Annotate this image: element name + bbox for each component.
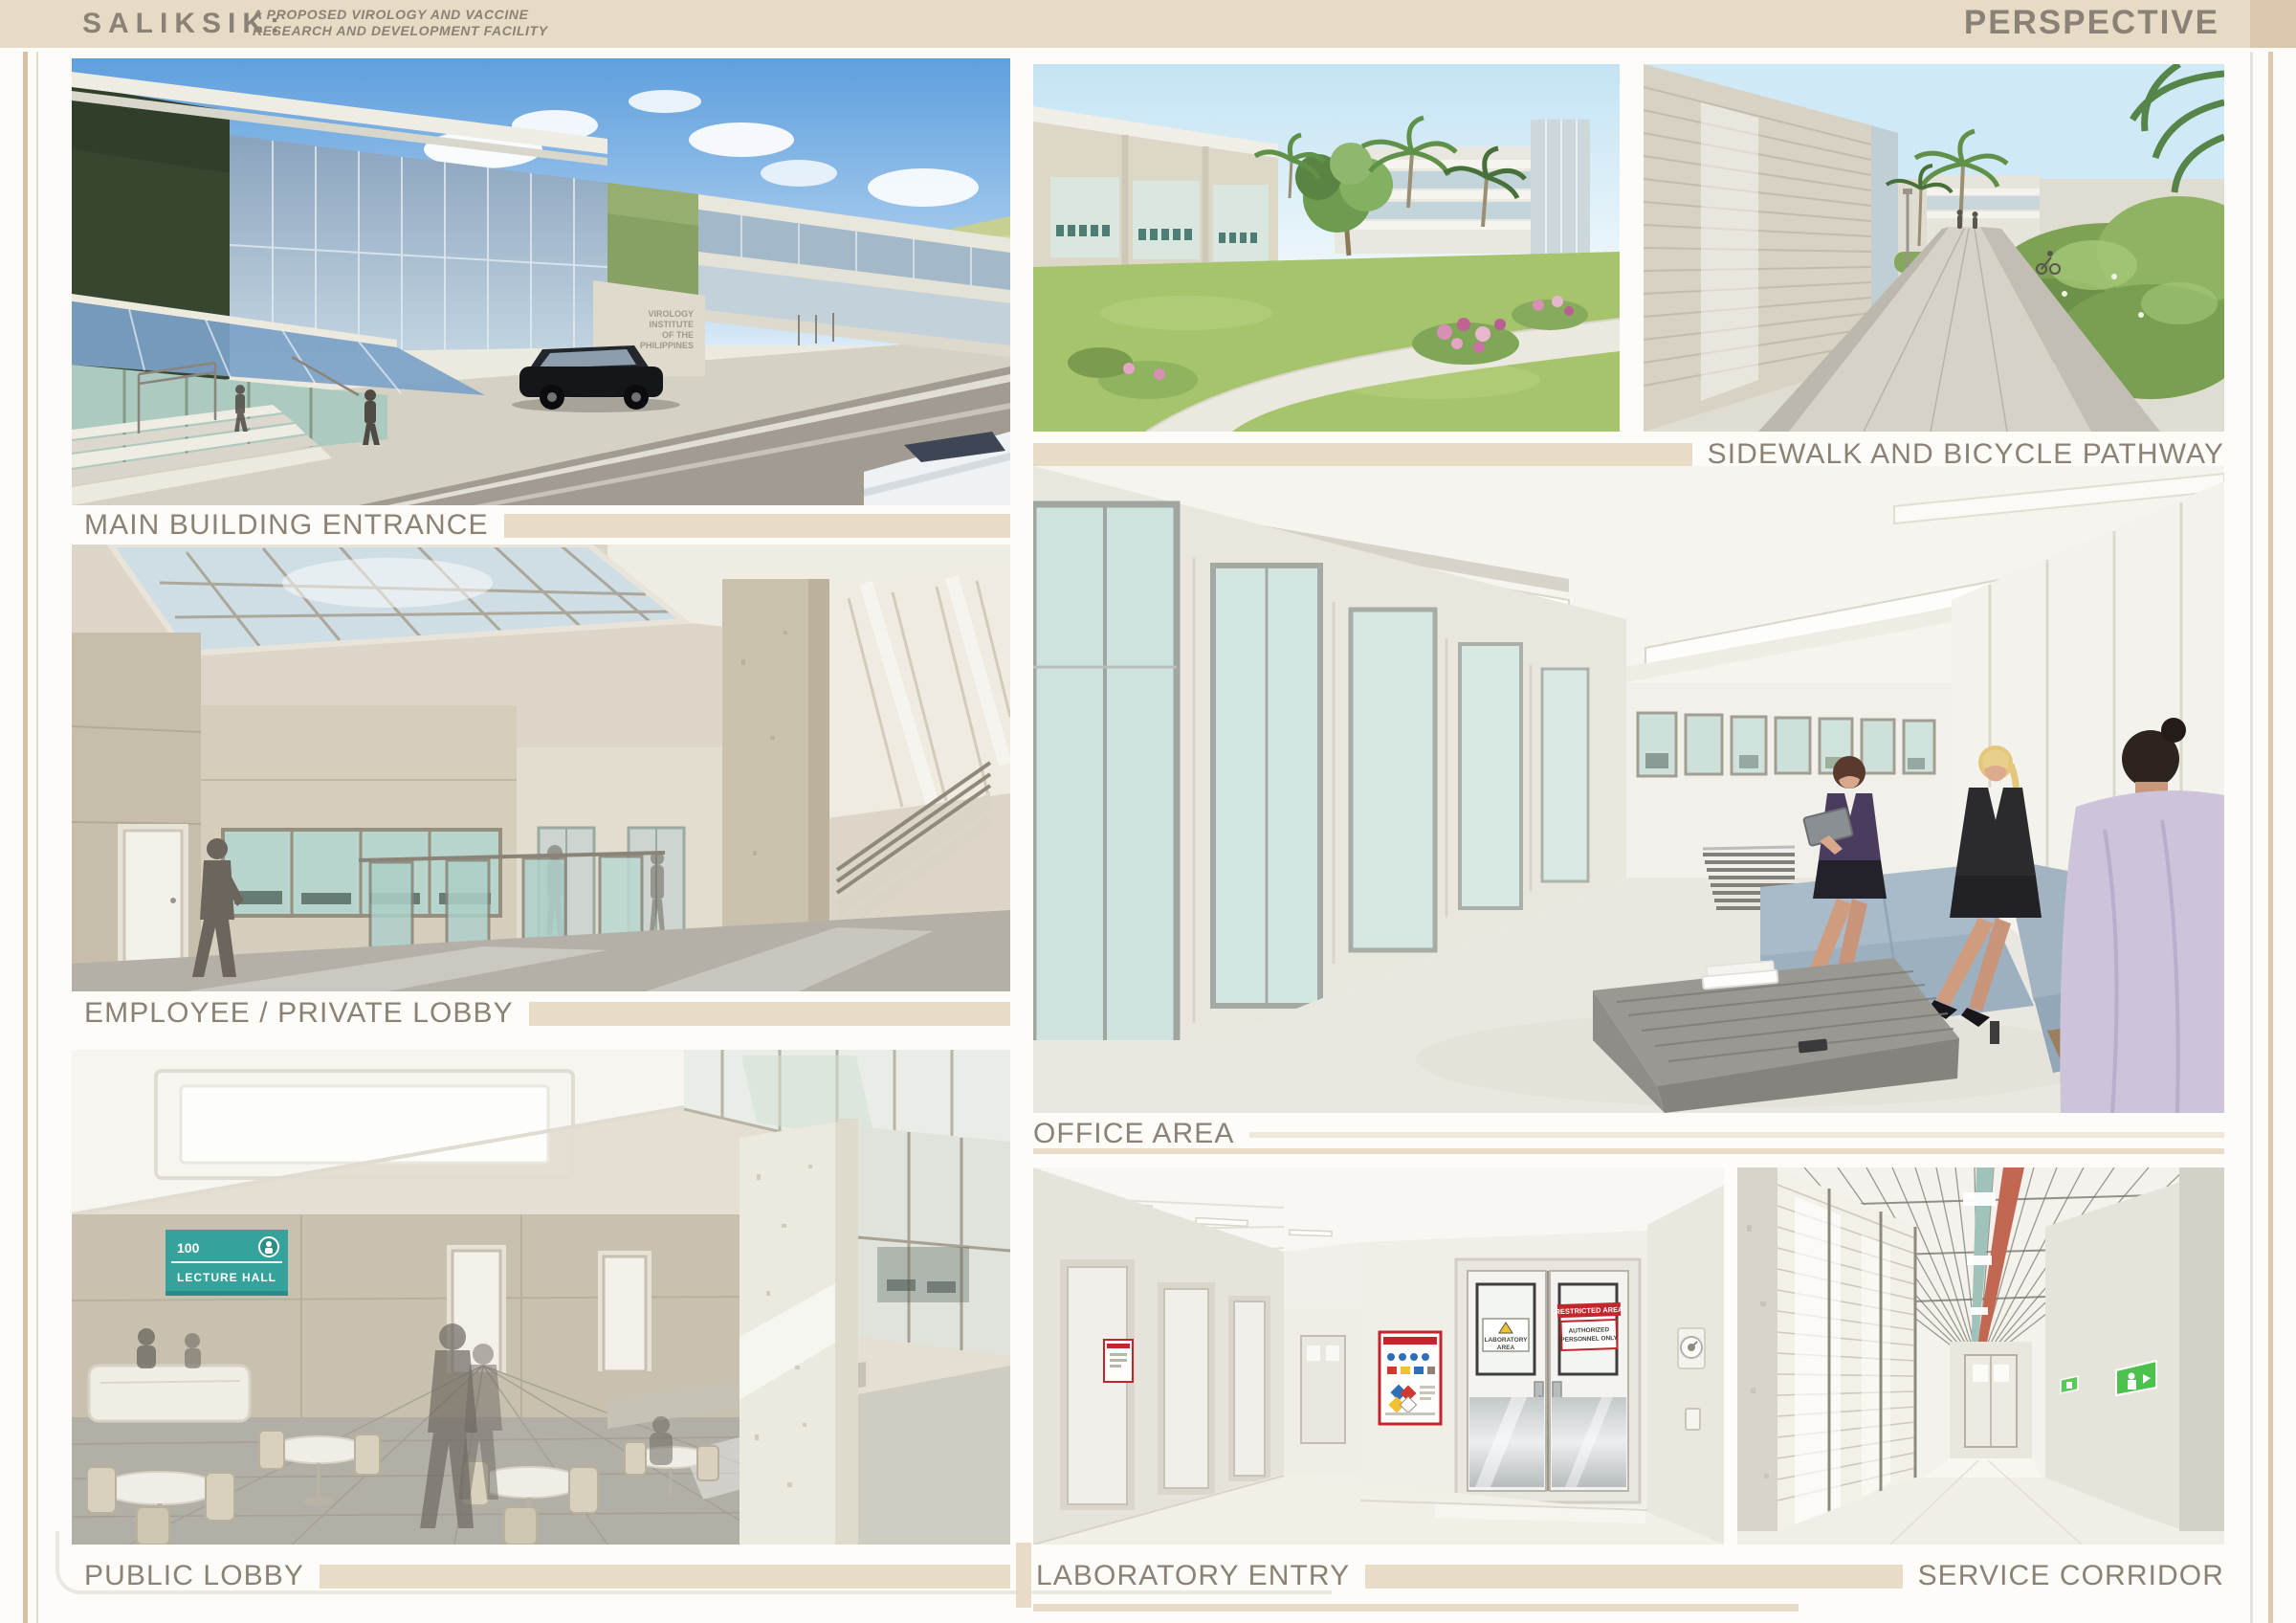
caption-office-area: OFFICE AREA (1033, 1118, 2224, 1150)
lecture-hall-sign: 100 LECTURE HALL (166, 1230, 288, 1296)
caption-accent-bar (1033, 443, 1692, 467)
laboratory-double-door: LABORATORY AREA RESTRICTED AREA AUTHORIZ… (1456, 1259, 1640, 1502)
office-caption-underline (1033, 1148, 2224, 1154)
right-rule-outer (2268, 52, 2273, 1623)
caption-employee-lobby: EMPLOYEE / PRIVATE LOBBY (84, 997, 1010, 1030)
caption-accent-bar (320, 1565, 1010, 1589)
caption-office-area-label: OFFICE AREA (1033, 1118, 1234, 1150)
svg-text:100: 100 (177, 1240, 200, 1256)
svg-text:VIROLOGY: VIROLOGY (648, 309, 694, 319)
caption-accent-bar (1365, 1565, 1902, 1589)
render-garden-courtyard (1033, 64, 1620, 432)
render-employee-lobby (72, 545, 1010, 991)
caption-employee-lobby-label: EMPLOYEE / PRIVATE LOBBY (84, 997, 514, 1030)
svg-text:LECTURE HALL: LECTURE HALL (177, 1271, 276, 1284)
column-divider (1016, 1543, 1031, 1608)
svg-text:OF THE: OF THE (662, 330, 694, 340)
right-rule-inner (2250, 52, 2253, 1623)
svg-text:PHILIPPINES: PHILIPPINES (640, 341, 694, 350)
white-door (604, 1256, 646, 1371)
header-band: SALIKSIK: A PROPOSED VIROLOGY AND VACCIN… (0, 0, 2296, 48)
white-door (124, 831, 182, 964)
caption-accent-bar (529, 1002, 1010, 1026)
svg-text:AUTHORIZED: AUTHORIZED (1568, 1326, 1609, 1334)
presentation-board: SALIKSIK: A PROPOSED VIROLOGY AND VACCIN… (0, 0, 2296, 1623)
render-main-entrance: VIROLOGY INSTITUTE OF THE PHILIPPINES (72, 58, 1010, 505)
caption-bottom-row: LABORATORY ENTRY SERVICE CORRIDOR (1036, 1560, 2224, 1592)
svg-text:INSTITUTE: INSTITUTE (650, 320, 695, 329)
left-rule-outer (23, 52, 28, 1623)
caption-thin-rule (1249, 1132, 2224, 1138)
render-sidewalk-pathway (1644, 64, 2224, 432)
thermostat (1678, 1328, 1705, 1368)
concrete-edge (1737, 1167, 1777, 1545)
header-endcap (2250, 0, 2296, 48)
caption-laboratory-label: LABORATORY ENTRY (1036, 1560, 1350, 1592)
svg-text:AREA: AREA (1497, 1345, 1515, 1351)
caption-main-entrance: MAIN BUILDING ENTRANCE (84, 509, 1010, 542)
sheet-title: PERSPECTIVE (1964, 4, 2219, 42)
caption-service-label: SERVICE CORRIDOR (1918, 1560, 2224, 1592)
caption-accent-bar (504, 514, 1010, 538)
project-subtitle: A PROPOSED VIROLOGY AND VACCINE RESEARCH… (253, 7, 548, 39)
caption-main-entrance-label: MAIN BUILDING ENTRANCE (84, 509, 489, 542)
restricted-area-sign: RESTRICTED AREA AUTHORIZED PERSONNEL ONL… (1555, 1302, 1623, 1350)
caption-public-lobby: PUBLIC LOBBY (84, 1560, 1010, 1592)
render-office-area (1033, 466, 2224, 1113)
render-laboratory-entry: LABORATORY AREA RESTRICTED AREA AUTHORIZ… (1033, 1167, 1724, 1545)
left-rule-inner (36, 52, 38, 1623)
svg-text:LABORATORY: LABORATORY (1484, 1337, 1528, 1344)
foreground-column (740, 1119, 858, 1545)
render-service-corridor (1737, 1167, 2224, 1545)
laboratory-area-sign: LABORATORY AREA (1483, 1319, 1529, 1351)
bottom-accent-bar (1033, 1604, 1799, 1612)
caption-public-lobby-label: PUBLIC LOBBY (84, 1560, 304, 1592)
corridor-doors (1060, 1259, 1270, 1510)
safety-poster (1380, 1332, 1441, 1424)
render-public-lobby: 100 LECTURE HALL (72, 1050, 1010, 1545)
